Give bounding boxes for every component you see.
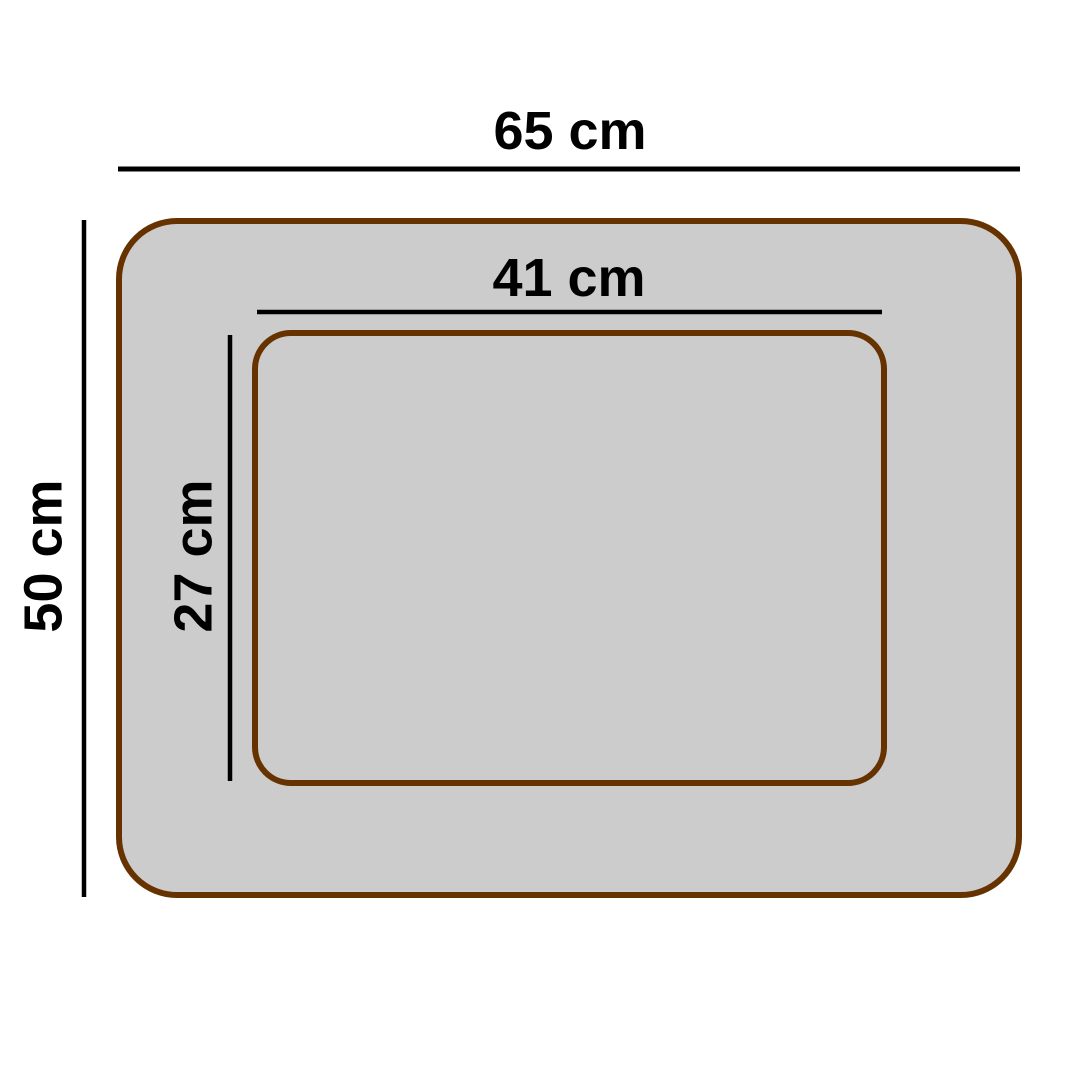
svg-text:41 cm: 41 cm xyxy=(492,248,645,308)
svg-text:27 cm: 27 cm xyxy=(164,479,224,632)
svg-text:50 cm: 50 cm xyxy=(14,479,74,632)
svg-text:65 cm: 65 cm xyxy=(493,101,646,161)
